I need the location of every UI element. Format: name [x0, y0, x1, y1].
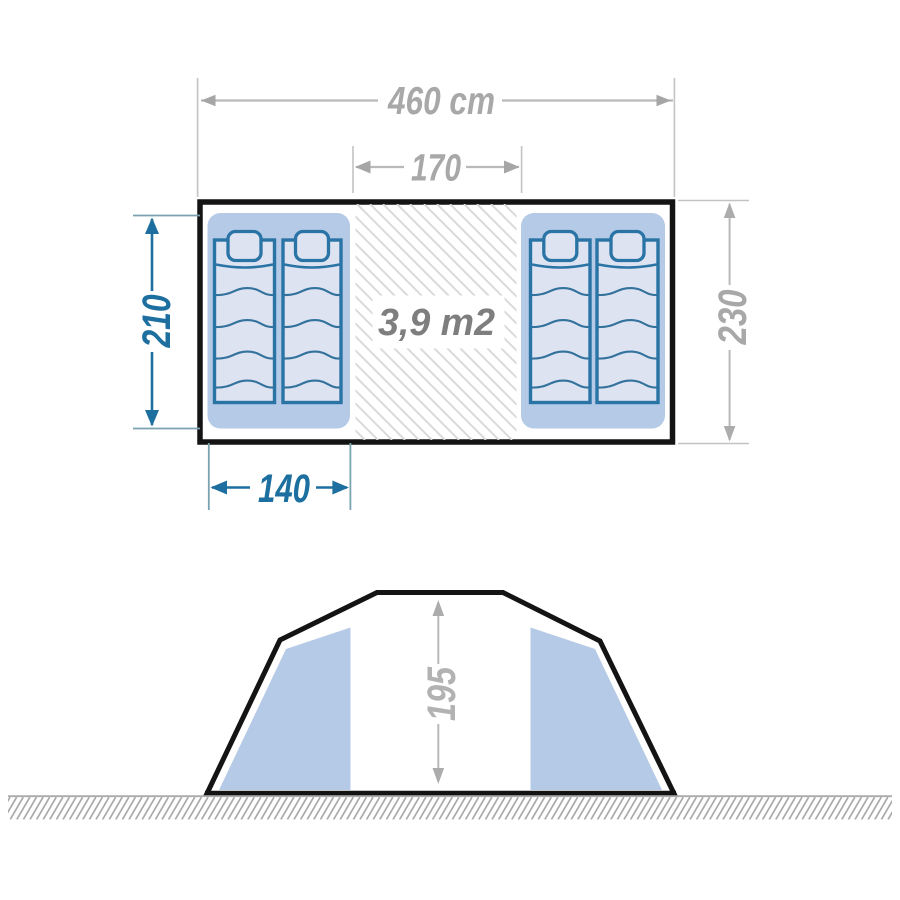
svg-text:140: 140 [258, 467, 310, 511]
svg-text:210: 210 [135, 295, 179, 349]
svg-text:3,9 m2: 3,9 m2 [378, 302, 495, 344]
svg-text:230: 230 [711, 290, 755, 346]
svg-text:170: 170 [411, 148, 461, 190]
svg-text:195: 195 [420, 666, 464, 721]
svg-text:460 cm: 460 cm [387, 80, 495, 123]
